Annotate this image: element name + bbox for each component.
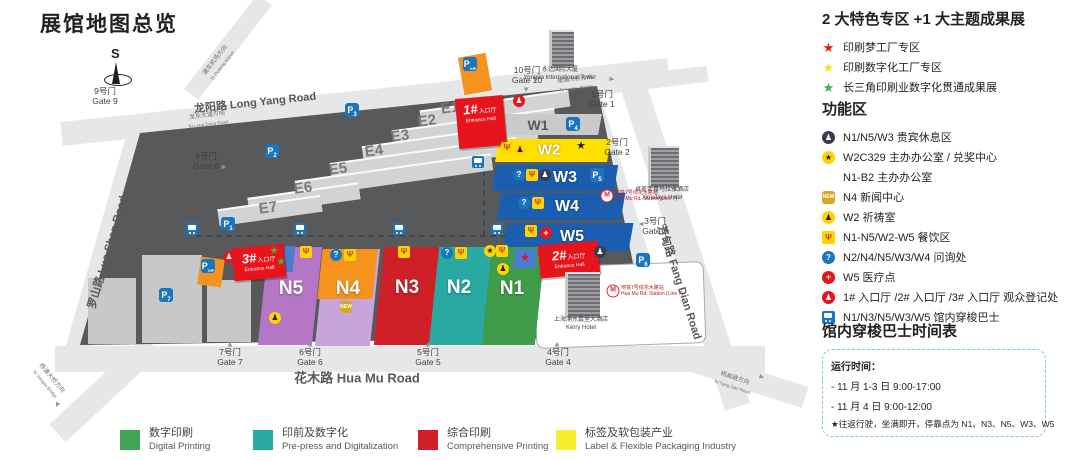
legend-text: 数字印刷Digital Printing	[149, 427, 210, 453]
shuttle-bus-icon-1	[294, 223, 306, 235]
function-item-label: N4 新闻中心	[843, 189, 904, 205]
question-icon: ?	[513, 169, 525, 181]
function-item-label: N1/N5/W3 贵宾休息区	[843, 129, 952, 145]
question-icon: ?	[330, 249, 342, 261]
function-item-label: W2C329 主办办公室 / 兑奖中心	[843, 149, 997, 165]
person-dark-icon: ♟	[822, 131, 835, 144]
medical-icon: +	[540, 227, 552, 239]
question-icon: ?	[822, 251, 835, 264]
gate-label-gate-8: 8号门Gate 8	[193, 152, 219, 172]
gate-arrow-6: ▲	[220, 163, 229, 171]
new-icon: NEW	[340, 301, 352, 313]
service-block-2	[207, 280, 251, 342]
utensils-icon: Ψ	[532, 197, 544, 209]
hall-N5-label: N5	[279, 278, 303, 300]
feature-zone-label: 长三角印刷业数字化贯通成果展	[843, 79, 997, 95]
function-item: NEWN4 新闻中心	[822, 189, 1072, 205]
gate-label-gate-4: 4号门Gate 4	[545, 348, 571, 368]
parking-icon-P1: P1	[221, 217, 235, 231]
function-item: +W5 医疗点	[822, 269, 1072, 285]
feature-zone-label: 印刷数字化工厂专区	[843, 59, 942, 75]
star-icon: ★	[275, 256, 287, 268]
gate-arrow-7: ▲	[607, 75, 617, 84]
function-item-label: N2/N4/N5/W3/W4 问询处	[843, 249, 966, 265]
person-yellow-icon: ♟	[269, 312, 281, 324]
legend-color-swatch	[120, 430, 140, 450]
legend-text: 综合印刷Comprehensive Printing	[447, 427, 548, 453]
hall-W1-label: W1	[528, 117, 549, 133]
function-item: ♟N1/N5/W3 贵宾休息区	[822, 129, 1072, 145]
utensils-icon: Ψ	[300, 246, 312, 258]
parking-icon-PVIP: PVIP	[201, 259, 215, 273]
legend-item: 印前及数字化Pre-press and Digitalization	[253, 427, 398, 453]
function-item: ♟W2 祈祷室	[822, 209, 1072, 225]
direction-label-2: 南浦大桥方向To Nanpu Bridge	[556, 65, 595, 94]
shuttle-bus-icon-4	[472, 156, 484, 168]
person-yellow-icon: ♟	[514, 144, 526, 156]
parking-icon-P7: P7	[159, 288, 173, 302]
gate-label-gate-9: 9号门Gate 9	[92, 87, 118, 107]
feature-zone-item: ★印刷梦工厂专区	[822, 39, 1072, 55]
function-item-label: W5 医疗点	[843, 269, 896, 285]
parking-icon-P5: P5	[590, 168, 604, 182]
feature-zone-item: ★长三角印刷业数字化贯通成果展	[822, 79, 1072, 95]
building-kerry-hotel	[565, 272, 600, 318]
compass-south-label: S	[111, 46, 120, 61]
entrance-hall-1: 1#入口厅Entrance Hall	[455, 95, 507, 149]
metro-station-label: 地铁7号线花木路站Hua Mu Rd. Station (Line 7)	[615, 190, 677, 202]
question-icon: ?	[518, 197, 530, 209]
featured-zones-panel: 2 大特色专区 +1 大主题成果展 ★印刷梦工厂专区★印刷数字化工厂专区★长三角…	[822, 8, 1072, 99]
functional-areas-title: 功能区	[822, 98, 1072, 119]
functional-areas-panel: 功能区 ♟N1/N5/W3 贵宾休息区★W2C329 主办办公室 / 兑奖中心N…	[822, 98, 1072, 329]
new-icon: NEW	[822, 191, 835, 204]
hall-W3-label: W3	[553, 169, 577, 187]
gate-arrow-1: ▲	[306, 340, 314, 349]
parking-icon-P4: P4	[566, 117, 580, 131]
star-icon: ★	[822, 81, 835, 94]
person-yellow-icon: ♟	[822, 211, 835, 224]
gate-label-gate-2: 2号门Gate 2	[604, 138, 630, 158]
building-yongda-international-tower	[549, 30, 574, 68]
shuttle-timetable-line: ★往返行驶，坐满即开，停靠点为 N1、N3、N5、W3、W5	[831, 418, 1037, 430]
legend-text: 印前及数字化Pre-press and Digitalization	[282, 427, 398, 453]
gate-label-gate-6: 6号门Gate 6	[297, 348, 323, 368]
gate-arrow-5: ▲	[637, 220, 646, 228]
medical-icon: +	[822, 271, 835, 284]
star-icon: ★	[822, 41, 835, 54]
hall-E3-label: E3	[390, 126, 411, 145]
hall-E7-label: E7	[258, 198, 279, 217]
star-icon: ★	[822, 61, 835, 74]
person-dark-icon: ♟	[539, 169, 551, 181]
shuttle-timetable-line: - 11 月 4 日 9:00-12:00	[831, 398, 1037, 413]
hall-E6-label: E6	[293, 178, 314, 197]
question-icon: ?	[441, 247, 453, 259]
shuttle-bus-icon-3	[491, 223, 503, 235]
exhibition-map-page: 展馆地图总览 E1E2E3E4E5E6E7W1W2W3W4W5N5N4N3N2N…	[0, 0, 1080, 460]
building-ximalaya-hotel	[648, 146, 679, 188]
function-item: ♟1# 入口厅 /2# 入口厅 /3# 入口厅 观众登记处	[822, 289, 1072, 305]
utensils-icon: Ψ	[822, 231, 835, 244]
compass-ellipse	[104, 74, 132, 86]
parking-icon-P3: P3	[345, 103, 359, 117]
utensils-icon: Ψ	[501, 142, 513, 154]
gate-arrow-2: ▲	[424, 340, 432, 349]
utensils-icon: Ψ	[455, 247, 467, 259]
function-item: ★W2C329 主办办公室 / 兑奖中心	[822, 149, 1072, 165]
legend-item: 数字印刷Digital Printing	[120, 427, 210, 453]
legend-item: 综合印刷Comprehensive Printing	[418, 427, 548, 453]
legend-color-swatch	[418, 430, 438, 450]
road-label-2: 花木路 Hua Mu Road	[294, 368, 420, 387]
legend-item: 标签及软包装产业Label & Flexible Packaging Indus…	[556, 427, 736, 453]
gate-arrow-4: ▲	[522, 86, 530, 95]
shuttle-timetable-title: 馆内穿梭巴士时间表	[822, 320, 1072, 341]
shuttle-bus-icon-2	[393, 223, 405, 235]
building-label: 上海浦东嘉里大酒店Kerry Hotel	[554, 317, 608, 332]
gate-arrow-3: ▲	[553, 340, 561, 349]
shuttle-timetable-line: 运行时间：	[831, 358, 1037, 373]
gate-arrow-0: ▲	[226, 340, 234, 349]
person-yellow-icon: ♟	[497, 263, 509, 275]
function-item-label: W2 祈祷室	[843, 209, 896, 225]
legend-color-swatch	[556, 430, 576, 450]
hall-W2-label: W2	[538, 142, 561, 159]
gate-label-gate-1: 1号门Gate 1	[589, 90, 615, 110]
function-item: ?N2/N4/N5/W3/W4 问询处	[822, 249, 1072, 265]
star-icon: ★	[575, 140, 587, 152]
person-red-icon: ♟	[513, 95, 525, 107]
hall-N4-label: N4	[336, 278, 360, 300]
hall-W4-label: W4	[555, 198, 579, 216]
star-circle-icon: ★	[484, 245, 496, 257]
function-item: N1-B2 主办办公室	[822, 169, 1072, 185]
gate-arrow-8: ▲	[52, 399, 63, 411]
metro-station-icon: M	[601, 190, 614, 203]
direction-label-1: 龙东大道方向To Long Dong Road	[186, 100, 229, 129]
shuttle-timetable-panel: 馆内穿梭巴士时间表 运行时间：- 11 月 1-3 日 9:00-17:00- …	[822, 320, 1072, 437]
metro-station-icon: M	[607, 285, 620, 298]
feature-zone-item: ★印刷数字化工厂专区	[822, 59, 1072, 75]
hall-N1-label: N1	[500, 278, 524, 300]
function-item-label: N1-N5/W2-W5 餐饮区	[843, 229, 951, 245]
gate-label-gate-7: 7号门Gate 7	[217, 348, 243, 368]
hall-E5-label: E5	[328, 159, 349, 178]
hall-E4-label: E4	[364, 141, 385, 160]
star-icon: ★	[519, 252, 531, 264]
featured-zones-title: 2 大特色专区 +1 大主题成果展	[822, 8, 1072, 29]
hall-N2-label: N2	[447, 277, 471, 299]
function-item-label: 1# 入口厅 /2# 入口厅 /3# 入口厅 观众登记处	[843, 289, 1058, 305]
legend-text: 标签及软包装产业Label & Flexible Packaging Indus…	[585, 427, 736, 453]
shuttle-timetable-box: 运行时间：- 11 月 1-3 日 9:00-17:00- 11 月 4 日 9…	[822, 349, 1046, 437]
parking-icon-PVIP: PVIP	[463, 57, 477, 71]
shuttle-bus-icon-0	[186, 223, 198, 235]
function-item: ΨN1-N5/W2-W5 餐饮区	[822, 229, 1072, 245]
parking-icon-P6: P6	[636, 253, 650, 267]
star-circle-icon: ★	[822, 151, 835, 164]
person-red-icon: ♟	[223, 251, 235, 263]
hall-W1	[498, 114, 602, 135]
hall-E2-label: E2	[417, 111, 438, 130]
parking-icon-P2: P2	[265, 144, 279, 158]
utensils-icon: Ψ	[526, 169, 538, 181]
person-dark-icon: ♟	[594, 246, 606, 258]
hall-N3-label: N3	[395, 277, 419, 299]
shuttle-route-line	[196, 235, 506, 237]
utensils-icon: Ψ	[496, 245, 508, 257]
person-red-icon: ♟	[822, 291, 835, 304]
legend-color-swatch	[253, 430, 273, 450]
utensils-icon: Ψ	[398, 246, 410, 258]
utensils-icon: Ψ	[525, 225, 537, 237]
feature-zone-label: 印刷梦工厂专区	[843, 39, 920, 55]
gate-label-gate-5: 5号门Gate 5	[415, 348, 441, 368]
function-item-label: N1-B2 主办办公室	[843, 169, 932, 185]
shuttle-timetable-line: - 11 月 1-3 日 9:00-17:00	[831, 378, 1037, 393]
utensils-icon: Ψ	[344, 249, 356, 261]
venue-map: E1E2E3E4E5E6E7W1W2W3W4W5N5N4N3N2N11#入口厅E…	[0, 0, 810, 460]
